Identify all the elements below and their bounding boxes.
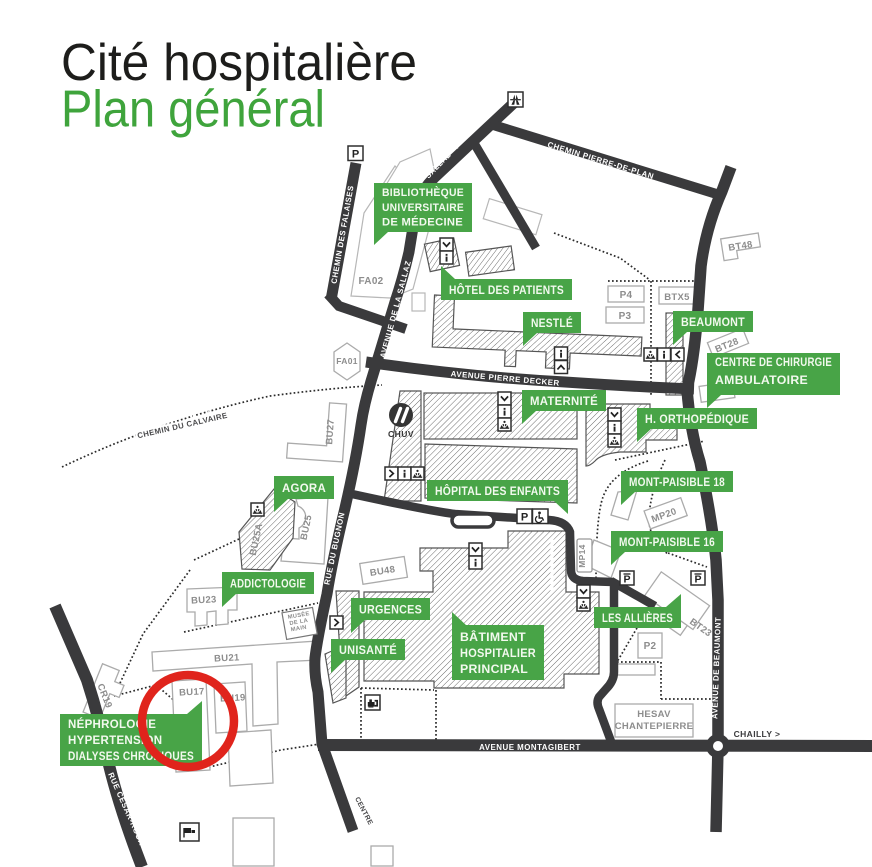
svg-text:HÔPITAL DES ENFANTS: HÔPITAL DES ENFANTS [435, 483, 560, 498]
svg-text:CHAILLY >: CHAILLY > [734, 729, 781, 739]
svg-text:H. ORTHOPÉDIQUE: H. ORTHOPÉDIQUE [645, 411, 749, 426]
svg-text:ADDICTOLOGIE: ADDICTOLOGIE [230, 576, 306, 590]
svg-text:MONT-PAISIBLE 18: MONT-PAISIBLE 18 [629, 475, 725, 489]
svg-text:MATERNITÉ: MATERNITÉ [530, 393, 598, 408]
svg-text:CHUV: CHUV [388, 429, 414, 439]
svg-text:DE MÉDECINE: DE MÉDECINE [382, 215, 463, 228]
svg-text:NESTLÉ: NESTLÉ [531, 315, 573, 330]
svg-text:FA01: FA01 [336, 356, 358, 366]
svg-text:CHANTEPIERRE: CHANTEPIERRE [615, 721, 694, 732]
svg-text:BIBLIOTHÈQUE: BIBLIOTHÈQUE [382, 186, 464, 199]
svg-text:MONT-PAISIBLE 16: MONT-PAISIBLE 16 [619, 535, 715, 549]
svg-text:AVENUE MONTAGIBERT: AVENUE MONTAGIBERT [479, 743, 581, 752]
svg-text:AMBULATOIRE: AMBULATOIRE [715, 373, 808, 387]
svg-text:P2: P2 [644, 641, 657, 652]
svg-text:FA02: FA02 [358, 276, 383, 287]
svg-text:AGORA: AGORA [282, 481, 326, 495]
svg-text:UNISANTÉ: UNISANTÉ [339, 642, 397, 657]
svg-text:PRINCIPAL: PRINCIPAL [460, 662, 528, 676]
svg-text:MP14: MP14 [577, 544, 587, 567]
svg-text:BEAUMONT: BEAUMONT [681, 315, 745, 329]
svg-text:BTX5: BTX5 [664, 292, 690, 303]
svg-text:BU17: BU17 [179, 686, 205, 698]
svg-text:Plan général: Plan général [61, 80, 325, 138]
svg-text:HOSPITALIER: HOSPITALIER [460, 646, 536, 660]
svg-text:HÔTEL DES PATIENTS: HÔTEL DES PATIENTS [449, 282, 564, 297]
svg-text:P4: P4 [620, 290, 633, 301]
svg-text:BU21: BU21 [214, 652, 240, 664]
svg-text:URGENCES: URGENCES [359, 602, 422, 616]
svg-text:BÂTIMENT: BÂTIMENT [460, 629, 526, 644]
svg-text:BU23: BU23 [191, 594, 217, 606]
svg-text:LES ALLIÈRES: LES ALLIÈRES [602, 610, 673, 625]
svg-text:CENTRE DE CHIRURGIE: CENTRE DE CHIRURGIE [715, 355, 832, 369]
svg-text:UNIVERSITAIRE: UNIVERSITAIRE [382, 202, 464, 214]
svg-text:HESAV: HESAV [637, 709, 671, 720]
svg-text:P3: P3 [619, 311, 632, 322]
svg-text:BU27: BU27 [324, 419, 337, 445]
